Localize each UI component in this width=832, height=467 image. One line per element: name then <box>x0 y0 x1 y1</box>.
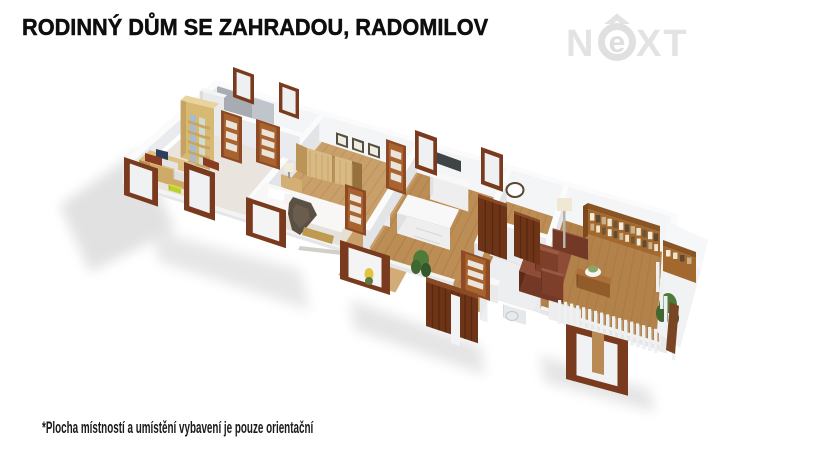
svg-text:N: N <box>566 23 593 65</box>
svg-text:XT: XT <box>636 23 689 65</box>
svg-text:e: e <box>609 26 626 59</box>
